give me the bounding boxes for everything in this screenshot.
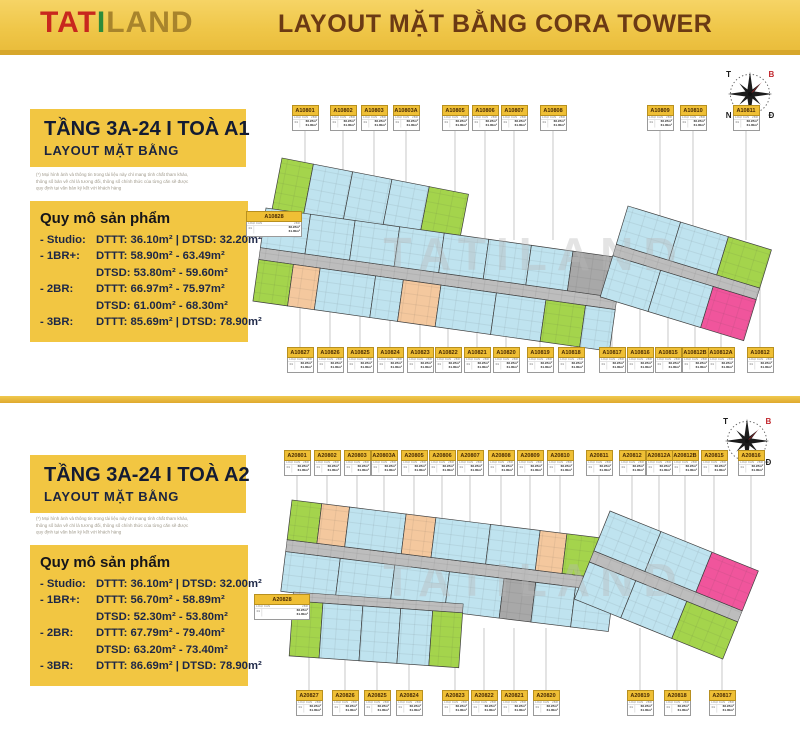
unit-label: A10823LOẠI CĂN2BR0166.97m²61.00m² bbox=[407, 347, 434, 373]
unit-detail-table: LOẠI CĂN2BR0166.97m²61.00m² bbox=[586, 461, 613, 476]
compass-south: N bbox=[726, 111, 732, 120]
unit-code: A20816 bbox=[738, 450, 765, 461]
section-tower-a1: TATILAND TẦNG 3A-24 I TOÀ A1 LAYOUT MẶT … bbox=[0, 55, 800, 396]
unit-detail-table: LOẠI CĂN2BR0166.97m²61.00m² bbox=[655, 358, 682, 373]
unit-code: A10826 bbox=[317, 347, 344, 358]
unit-label: A20803ALOẠI CĂN2BR0166.97m²61.00m² bbox=[371, 450, 398, 476]
unit-label: A20825LOẠI CĂN2BR0166.97m²61.00m² bbox=[364, 690, 391, 716]
scale-row: - Studio:DTTT: 36.10m² | DTSD: 32.00m² bbox=[40, 576, 242, 592]
unit-code: A10809 bbox=[647, 105, 674, 116]
unit-code: A20810 bbox=[547, 450, 574, 461]
unit-label: A20806LOẠI CĂN2BR0166.97m²61.00m² bbox=[429, 450, 456, 476]
unit-label: A10808LOẠI CĂN2BR0166.97m²61.00m² bbox=[540, 105, 567, 131]
unit-code: A10803 bbox=[361, 105, 388, 116]
unit-detail-table: LOẠI CĂN2BR0166.97m²61.00m² bbox=[619, 461, 646, 476]
unit-label: A20822LOẠI CĂN2BR0166.97m²61.00m² bbox=[471, 690, 498, 716]
unit-detail-table: LOẠI CĂN2BR0166.97m²61.00m² bbox=[393, 116, 420, 131]
unit-detail-table: LOẠI CĂN2BR0166.97m²61.00m² bbox=[407, 358, 434, 373]
unit-detail-table: LOẠI CĂN2BR0166.97m²61.00m² bbox=[401, 461, 428, 476]
unit-code: A20821 bbox=[501, 690, 528, 701]
unit-label: A20811LOẠI CĂN2BR0166.97m²61.00m² bbox=[586, 450, 613, 476]
unit-detail-table: LOẠI CĂN2BR0166.97m²61.00m² bbox=[672, 461, 699, 476]
unit-code: A10806 bbox=[472, 105, 499, 116]
unit-code: A10824 bbox=[377, 347, 404, 358]
unit-detail-table: LOẠI CĂN2BR0166.97m²61.00m² bbox=[647, 116, 674, 131]
unit-label: A20820LOẠI CĂN2BR0166.97m²61.00m² bbox=[533, 690, 560, 716]
unit-label: A10816LOẠI CĂN2BR0166.97m²61.00m² bbox=[627, 347, 654, 373]
unit-code: A10812A bbox=[708, 347, 735, 358]
unit-detail-table: LOẠI CĂN2BR0166.97m²61.00m² bbox=[709, 701, 736, 716]
unit-detail-table: LOẠI CĂN2BR0166.97m²61.00m² bbox=[733, 116, 760, 131]
unit-code: A20811 bbox=[586, 450, 613, 461]
unit-code: A10817 bbox=[599, 347, 626, 358]
compass-east: Đ bbox=[769, 111, 775, 120]
unit-code: A10820 bbox=[493, 347, 520, 358]
unit-detail-table: LOẠI CĂN2BR0166.97m²61.00m² bbox=[533, 701, 560, 716]
product-scale-rows: - Studio:DTTT: 36.10m² | DTSD: 32.20m²- … bbox=[40, 232, 242, 330]
unit-detail-table: LOẠI CĂN2BR0166.97m²61.00m² bbox=[517, 461, 544, 476]
unit-label: A10809LOẠI CĂN2BR0166.97m²61.00m² bbox=[647, 105, 674, 131]
scale-row: - 3BR:DTTT: 86.69m² | DTSD: 78.90m² bbox=[40, 658, 242, 674]
unit-detail-table: LOẠI CĂN2BR0166.97m²61.00m² bbox=[317, 358, 344, 373]
unit-label: A10801LOẠI CĂN2BR0166.97m²61.00m² bbox=[292, 105, 319, 131]
unit-detail-table: LOẠI CĂN2BR0166.97m²61.00m² bbox=[540, 116, 567, 131]
scale-row: - 1BR+:DTTT: 56.70m² - 58.89m²DTSD: 52.3… bbox=[40, 592, 242, 625]
unit-label: A20810LOẠI CĂN2BR0166.97m²61.00m² bbox=[547, 450, 574, 476]
unit-label: A10818LOẠI CĂN2BR0166.97m²61.00m² bbox=[558, 347, 585, 373]
unit-code: A20803A bbox=[371, 450, 398, 461]
unit-code: A20806 bbox=[429, 450, 456, 461]
section-divider bbox=[0, 396, 800, 403]
unit-detail-table: LOẠI CĂN2BR0166.97m²61.00m² bbox=[599, 358, 626, 373]
scale-row: - 3BR:DTTT: 85.69m² | DTSD: 78.90m² bbox=[40, 314, 242, 330]
unit-label: A10815LOẠI CĂN2BR0166.97m²61.00m² bbox=[655, 347, 682, 373]
unit-code: A10808 bbox=[540, 105, 567, 116]
compass-east: Đ bbox=[766, 458, 772, 467]
unit-detail-table: LOẠI CĂN2BR0166.97m²61.00m² bbox=[435, 358, 462, 373]
unit-label: A20803LOẠI CĂN2BR0166.97m²61.00m² bbox=[344, 450, 371, 476]
unit-label: A10812ALOẠI CĂN2BR0166.97m²61.00m² bbox=[708, 347, 735, 373]
unit-code: A20817 bbox=[709, 690, 736, 701]
unit-detail-table: LOẠI CĂN2BR0166.97m²61.00m² bbox=[708, 358, 735, 373]
unit-code: A20824 bbox=[396, 690, 423, 701]
unit-label: A10803LOẠI CĂN2BR0166.97m²61.00m² bbox=[361, 105, 388, 131]
unit-label: A20801LOẠI CĂN2BR0166.97m²61.00m² bbox=[284, 450, 311, 476]
unit-detail-table: LOẠI CĂN2BR0166.97m²61.00m² bbox=[332, 701, 359, 716]
product-scale-title: Quy mô sản phẩm bbox=[40, 210, 242, 227]
unit-code: A20827 bbox=[296, 690, 323, 701]
unit-detail-table: LOẠI CĂN2BR0166.97m²61.00m² bbox=[314, 461, 341, 476]
disclaimer-note: (*) Mọi hình ảnh và thông tin trong tài … bbox=[36, 172, 248, 198]
unit-label: A20823LOẠI CĂN2BR0166.97m²61.00m² bbox=[442, 690, 469, 716]
unit-code: A10812B bbox=[682, 347, 709, 358]
unit-detail-table: LOẠI CĂN2BR0166.97m²61.00m² bbox=[493, 358, 520, 373]
unit-code: A20825 bbox=[364, 690, 391, 701]
unit-code: A20803 bbox=[344, 450, 371, 461]
brand-logo: TATILAND bbox=[40, 6, 194, 40]
unit-code: A10811 bbox=[733, 105, 760, 116]
unit-detail-table: LOẠI CĂN2BR0166.97m²61.00m² bbox=[296, 701, 323, 716]
unit-label: A20828LOẠI CĂN2BR0166.97m²61.00m² bbox=[254, 594, 310, 620]
unit-label: A20802LOẠI CĂN2BR0166.97m²61.00m² bbox=[314, 450, 341, 476]
unit-label: A10802LOẠI CĂN2BR0166.97m²61.00m² bbox=[330, 105, 357, 131]
tower-title: TẦNG 3A-24 I TOÀ A1 bbox=[44, 118, 246, 141]
unit-code: A10801 bbox=[292, 105, 319, 116]
unit-label: A10828LOẠI CĂN2BR0166.97m²61.00m² bbox=[246, 211, 302, 237]
unit-label: A10826LOẠI CĂN2BR0166.97m²61.00m² bbox=[317, 347, 344, 373]
unit-label: A20817LOẠI CĂN2BR0166.97m²61.00m² bbox=[709, 690, 736, 716]
unit-code: A20808 bbox=[488, 450, 515, 461]
unit-detail-table: LOẠI CĂN2BR0166.97m²61.00m² bbox=[558, 358, 585, 373]
unit-detail-table: LOẠI CĂN2BR0166.97m²61.00m² bbox=[501, 701, 528, 716]
unit-detail-table: LOẠI CĂN2BR0166.97m²61.00m² bbox=[442, 701, 469, 716]
product-scale-rows: - Studio:DTTT: 36.10m² | DTSD: 32.00m²- … bbox=[40, 576, 242, 674]
unit-detail-table: LOẠI CĂN2BR0166.97m²61.00m² bbox=[371, 461, 398, 476]
unit-detail-table: LOẠI CĂN2BR0166.97m²61.00m² bbox=[246, 222, 302, 237]
unit-detail-table: LOẠI CĂN2BR0166.97m²61.00m² bbox=[547, 461, 574, 476]
logo-land: LAND bbox=[106, 6, 193, 39]
unit-label: A20819LOẠI CĂN2BR0166.97m²61.00m² bbox=[627, 690, 654, 716]
tower-title-box: TẦNG 3A-24 I TOÀ A1 LAYOUT MẶT BẰNG bbox=[30, 109, 246, 167]
logo-tat: TAT bbox=[40, 6, 97, 39]
unit-detail-table: LOẠI CĂN2BR0166.97m²61.00m² bbox=[330, 116, 357, 131]
unit-code: A10818 bbox=[558, 347, 585, 358]
unit-code: A10821 bbox=[464, 347, 491, 358]
product-scale-box: Quy mô sản phẩm - Studio:DTTT: 36.10m² |… bbox=[30, 201, 248, 342]
unit-detail-table: LOẠI CĂN2BR0166.97m²61.00m² bbox=[738, 461, 765, 476]
unit-code: A10819 bbox=[527, 347, 554, 358]
unit-detail-table: LOẠI CĂN2BR0166.97m²61.00m² bbox=[472, 116, 499, 131]
unit-label: A10812LOẠI CĂN2BR0166.97m²61.00m² bbox=[747, 347, 774, 373]
unit-code: A20820 bbox=[533, 690, 560, 701]
unit-detail-table: LOẠI CĂN2BR0166.97m²61.00m² bbox=[747, 358, 774, 373]
unit-detail-table: LOẠI CĂN2BR0166.97m²61.00m² bbox=[457, 461, 484, 476]
unit-detail-table: LOẠI CĂN2BR0166.97m²61.00m² bbox=[527, 358, 554, 373]
unit-code: A20815 bbox=[701, 450, 728, 461]
unit-label: A10819LOẠI CĂN2BR0166.97m²61.00m² bbox=[527, 347, 554, 373]
unit-code: A10807 bbox=[501, 105, 528, 116]
unit-label: A10827LOẠI CĂN2BR0166.97m²61.00m² bbox=[287, 347, 314, 373]
unit-label: A20824LOẠI CĂN2BR0166.97m²61.00m² bbox=[396, 690, 423, 716]
unit-code: A10816 bbox=[627, 347, 654, 358]
unit-code: A10828 bbox=[246, 211, 302, 222]
unit-code: A20802 bbox=[314, 450, 341, 461]
unit-detail-table: LOẠI CĂN2BR0166.97m²61.00m² bbox=[680, 116, 707, 131]
unit-detail-table: LOẠI CĂN2BR0166.97m²61.00m² bbox=[347, 358, 374, 373]
unit-code: A10823 bbox=[407, 347, 434, 358]
unit-code: A10815 bbox=[655, 347, 682, 358]
unit-code: A20828 bbox=[254, 594, 310, 605]
unit-label: A20805LOẠI CĂN2BR0166.97m²61.00m² bbox=[401, 450, 428, 476]
unit-code: A20812A bbox=[646, 450, 673, 461]
unit-label: A20809LOẠI CĂN2BR0166.97m²61.00m² bbox=[517, 450, 544, 476]
tower-subtitle: LAYOUT MẶT BẰNG bbox=[44, 143, 246, 158]
unit-label: A20808LOẠI CĂN2BR0166.97m²61.00m² bbox=[488, 450, 515, 476]
unit-detail-table: LOẠI CĂN2BR0166.97m²61.00m² bbox=[627, 358, 654, 373]
unit-label: A20826LOẠI CĂN2BR0166.97m²61.00m² bbox=[332, 690, 359, 716]
unit-label: A10805LOẠI CĂN2BR0166.97m²61.00m² bbox=[442, 105, 469, 131]
unit-label: A20821LOẠI CĂN2BR0166.97m²61.00m² bbox=[501, 690, 528, 716]
product-scale-box: Quy mô sản phẩm - Studio:DTTT: 36.10m² |… bbox=[30, 545, 248, 686]
scale-row: - Studio:DTTT: 36.10m² | DTSD: 32.20m² bbox=[40, 232, 242, 248]
unit-code: A20812B bbox=[672, 450, 699, 461]
compass-north: B bbox=[766, 417, 772, 426]
unit-code: A20818 bbox=[664, 690, 691, 701]
unit-label: A20816LOẠI CĂN2BR0166.97m²61.00m² bbox=[738, 450, 765, 476]
logo-i: I bbox=[97, 6, 106, 39]
unit-code: A10827 bbox=[287, 347, 314, 358]
unit-label: A10821LOẠI CĂN2BR0166.97m²61.00m² bbox=[464, 347, 491, 373]
unit-detail-table: LOẠI CĂN2BR0166.97m²61.00m² bbox=[627, 701, 654, 716]
unit-code: A10825 bbox=[347, 347, 374, 358]
unit-label: A20815LOẠI CĂN2BR0166.97m²61.00m² bbox=[701, 450, 728, 476]
unit-code: A20819 bbox=[627, 690, 654, 701]
unit-label: A20818LOẠI CĂN2BR0166.97m²61.00m² bbox=[664, 690, 691, 716]
unit-code: A10810 bbox=[680, 105, 707, 116]
scale-row: - 2BR:DTTT: 67.79m² - 79.40m²DTSD: 63.20… bbox=[40, 625, 242, 658]
unit-detail-table: LOẠI CĂN2BR0166.97m²61.00m² bbox=[364, 701, 391, 716]
page-title: LAYOUT MẶT BẰNG CORA TOWER bbox=[278, 10, 712, 39]
tower-subtitle: LAYOUT MẶT BẰNG bbox=[44, 489, 246, 504]
unit-detail-table: LOẠI CĂN2BR0166.97m²61.00m² bbox=[471, 701, 498, 716]
unit-code: A20801 bbox=[284, 450, 311, 461]
product-scale-title: Quy mô sản phẩm bbox=[40, 554, 242, 571]
unit-label: A20807LOẠI CĂN2BR0166.97m²61.00m² bbox=[457, 450, 484, 476]
unit-detail-table: LOẠI CĂN2BR0166.97m²61.00m² bbox=[682, 358, 709, 373]
unit-detail-table: LOẠI CĂN2BR0166.97m²61.00m² bbox=[361, 116, 388, 131]
unit-detail-table: LOẠI CĂN2BR0166.97m²61.00m² bbox=[254, 605, 310, 620]
unit-detail-table: LOẠI CĂN2BR0166.97m²61.00m² bbox=[646, 461, 673, 476]
scale-row: - 1BR+:DTTT: 58.90m² - 63.49m²DTSD: 53.8… bbox=[40, 248, 242, 281]
unit-detail-table: LOẠI CĂN2BR0166.97m²61.00m² bbox=[377, 358, 404, 373]
unit-code: A20809 bbox=[517, 450, 544, 461]
unit-detail-table: LOẠI CĂN2BR0166.97m²61.00m² bbox=[701, 461, 728, 476]
page: TATILAND LAYOUT MẶT BẰNG CORA TOWER TATI… bbox=[0, 0, 800, 736]
unit-label: A20827LOẠI CĂN2BR0166.97m²61.00m² bbox=[296, 690, 323, 716]
unit-label: A10810LOẠI CĂN2BR0166.97m²61.00m² bbox=[680, 105, 707, 131]
unit-code: A10812 bbox=[747, 347, 774, 358]
unit-label: A10807LOẠI CĂN2BR0166.97m²61.00m² bbox=[501, 105, 528, 131]
unit-code: A10802 bbox=[330, 105, 357, 116]
unit-detail-table: LOẠI CĂN2BR0166.97m²61.00m² bbox=[664, 701, 691, 716]
unit-label: A10824LOẠI CĂN2BR0166.97m²61.00m² bbox=[377, 347, 404, 373]
unit-code: A20822 bbox=[471, 690, 498, 701]
unit-code: A20807 bbox=[457, 450, 484, 461]
scale-row: - 2BR:DTTT: 66.97m² - 75.97m²DTSD: 61.00… bbox=[40, 281, 242, 314]
unit-detail-table: LOẠI CĂN2BR0166.97m²61.00m² bbox=[464, 358, 491, 373]
unit-label: A10803ALOẠI CĂN2BR0166.97m²61.00m² bbox=[393, 105, 420, 131]
unit-label: A20812ALOẠI CĂN2BR0166.97m²61.00m² bbox=[646, 450, 673, 476]
unit-label: A10811LOẠI CĂN2BR0166.97m²61.00m² bbox=[733, 105, 760, 131]
unit-label: A10817LOẠI CĂN2BR0166.97m²61.00m² bbox=[599, 347, 626, 373]
unit-detail-table: LOẠI CĂN2BR0166.97m²61.00m² bbox=[396, 701, 423, 716]
unit-code: A20812 bbox=[619, 450, 646, 461]
tower-title: TẦNG 3A-24 I TOÀ A2 bbox=[44, 464, 246, 487]
unit-label: A10806LOẠI CĂN2BR0166.97m²61.00m² bbox=[472, 105, 499, 131]
compass-west: T bbox=[726, 70, 731, 79]
unit-label: A20812BLOẠI CĂN2BR0166.97m²61.00m² bbox=[672, 450, 699, 476]
app-header: TATILAND LAYOUT MẶT BẰNG CORA TOWER bbox=[0, 0, 800, 55]
unit-detail-table: LOẠI CĂN2BR0166.97m²61.00m² bbox=[429, 461, 456, 476]
unit-detail-table: LOẠI CĂN2BR0166.97m²61.00m² bbox=[292, 116, 319, 131]
unit-code: A10822 bbox=[435, 347, 462, 358]
unit-detail-table: LOẠI CĂN2BR0166.97m²61.00m² bbox=[488, 461, 515, 476]
disclaimer-note: (*) Mọi hình ảnh và thông tin trong tài … bbox=[36, 516, 248, 542]
unit-code: A20826 bbox=[332, 690, 359, 701]
unit-code: A10805 bbox=[442, 105, 469, 116]
unit-detail-table: LOẠI CĂN2BR0166.97m²61.00m² bbox=[501, 116, 528, 131]
unit-detail-table: LOẠI CĂN2BR0166.97m²61.00m² bbox=[284, 461, 311, 476]
unit-detail-table: LOẠI CĂN2BR0166.97m²61.00m² bbox=[344, 461, 371, 476]
section-tower-a2: TATILAND TẦNG 3A-24 I TOÀ A2 LAYOUT MẶT … bbox=[0, 403, 800, 736]
unit-detail-table: LOẠI CĂN2BR0166.97m²61.00m² bbox=[442, 116, 469, 131]
tower-title-box: TẦNG 3A-24 I TOÀ A2 LAYOUT MẶT BẰNG bbox=[30, 455, 246, 513]
unit-label: A10820LOẠI CĂN2BR0166.97m²61.00m² bbox=[493, 347, 520, 373]
compass-north: B bbox=[769, 70, 775, 79]
unit-label: A10825LOẠI CĂN2BR0166.97m²61.00m² bbox=[347, 347, 374, 373]
unit-label: A10812BLOẠI CĂN2BR0166.97m²61.00m² bbox=[682, 347, 709, 373]
unit-label: A10822LOẠI CĂN2BR0166.97m²61.00m² bbox=[435, 347, 462, 373]
unit-detail-table: LOẠI CĂN2BR0166.97m²61.00m² bbox=[287, 358, 314, 373]
unit-code: A10803A bbox=[393, 105, 420, 116]
unit-code: A20805 bbox=[401, 450, 428, 461]
unit-code: A20823 bbox=[442, 690, 469, 701]
compass-west: T bbox=[723, 417, 728, 426]
unit-label: A20812LOẠI CĂN2BR0166.97m²61.00m² bbox=[619, 450, 646, 476]
